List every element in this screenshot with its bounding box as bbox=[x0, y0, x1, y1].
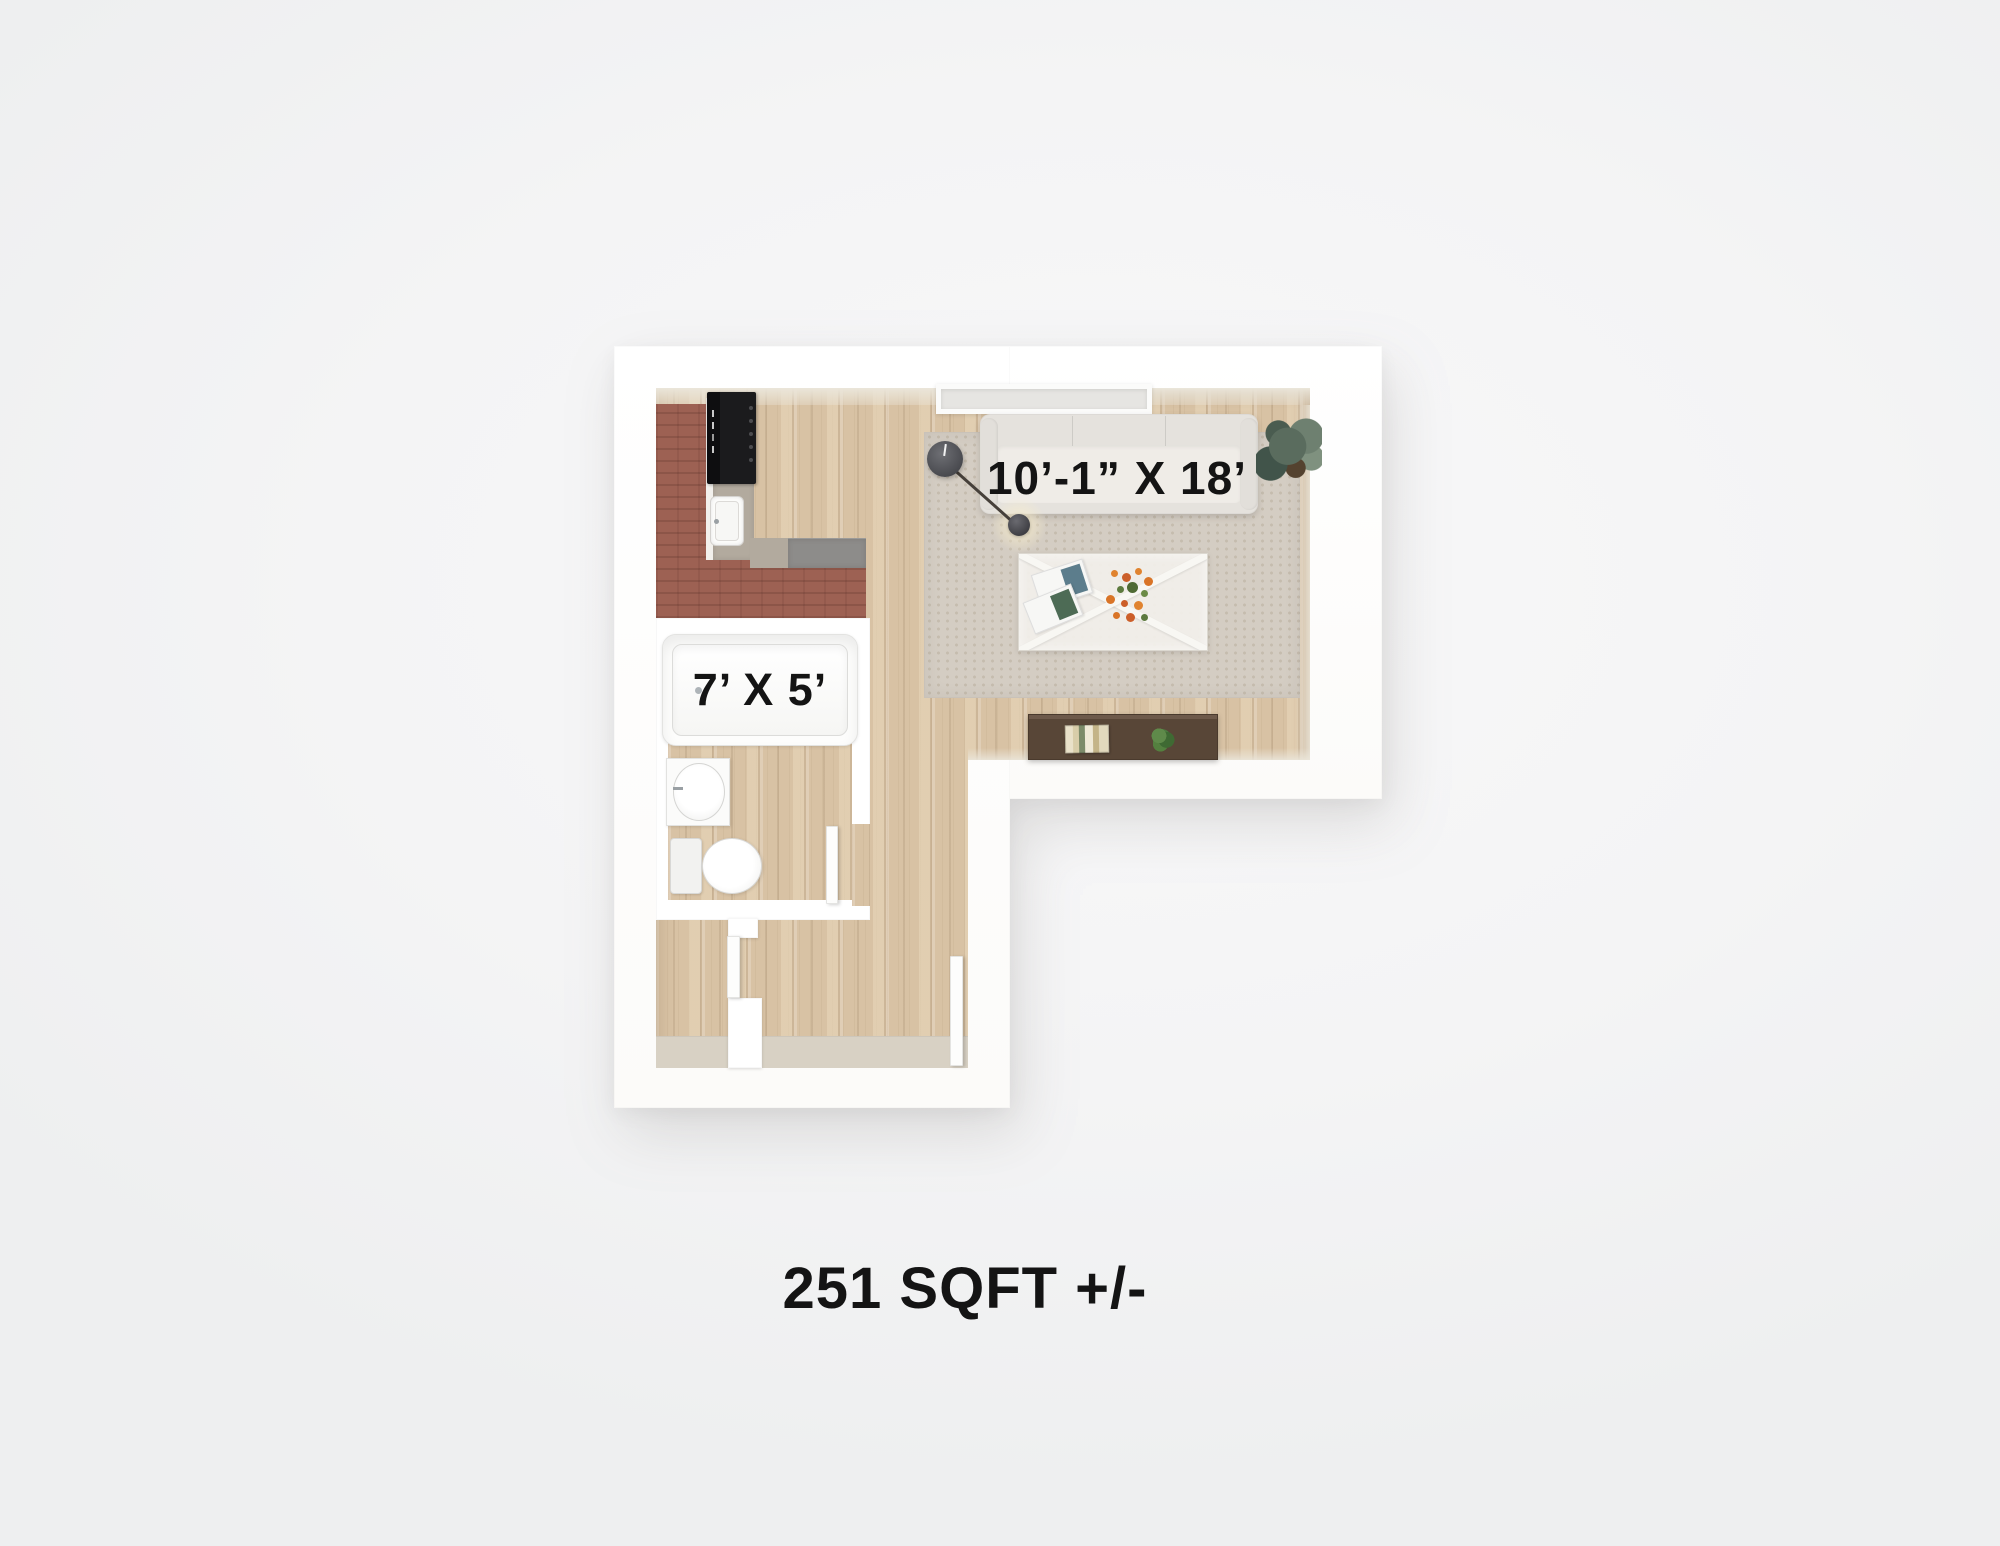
lamp-tick bbox=[943, 444, 947, 456]
closet-door-leaf bbox=[727, 936, 740, 998]
bathroom-vanity bbox=[666, 758, 730, 826]
vestibule-wall-upper bbox=[728, 918, 758, 938]
living-room-dimension-label: 10’-1” X 18’ bbox=[967, 452, 1267, 504]
toilet-icon bbox=[702, 838, 762, 894]
stove-display-marks bbox=[712, 410, 714, 417]
floor-lamp-icon bbox=[927, 441, 963, 477]
books-icon bbox=[1065, 725, 1109, 754]
lamp-bulb-icon bbox=[1008, 514, 1030, 536]
vestibule-wall-lower bbox=[728, 998, 762, 1068]
entry-door-leaf bbox=[950, 956, 963, 1066]
entry-floor-strip bbox=[656, 1036, 968, 1068]
flower-bouquet-icon bbox=[1111, 570, 1118, 577]
stove-knobs bbox=[749, 406, 753, 410]
bathroom-door-leaf bbox=[826, 826, 838, 904]
stove-icon bbox=[707, 392, 756, 484]
step-landing bbox=[788, 538, 866, 568]
kitchen-sink-icon bbox=[710, 496, 744, 546]
floorplan-image: 7’ X 5’ bbox=[0, 0, 2000, 1546]
sofa-cushion-seam bbox=[1165, 416, 1166, 446]
bathroom-sink-icon bbox=[673, 763, 725, 821]
kitchen-counter-return bbox=[750, 538, 790, 568]
bathroom-door-opening bbox=[852, 824, 870, 906]
bathtub-icon: 7’ X 5’ bbox=[662, 634, 858, 746]
console-table-icon bbox=[1028, 714, 1218, 760]
window-icon bbox=[936, 384, 1152, 414]
area-label: 251 SQFT +/- bbox=[665, 1243, 1265, 1333]
kitchen-brick-floor-bottom bbox=[656, 560, 866, 618]
bathroom-faucet-icon bbox=[673, 787, 683, 790]
kitchen-faucet-icon bbox=[714, 519, 719, 524]
bathroom-dimension-label: 7’ X 5’ bbox=[663, 635, 857, 745]
magazine-photo bbox=[1050, 589, 1078, 621]
coffee-table-icon bbox=[1018, 553, 1208, 651]
sofa-cushion-seam bbox=[1072, 416, 1073, 446]
toilet-tank-icon bbox=[670, 838, 702, 894]
potted-plant-icon bbox=[1147, 725, 1177, 752]
